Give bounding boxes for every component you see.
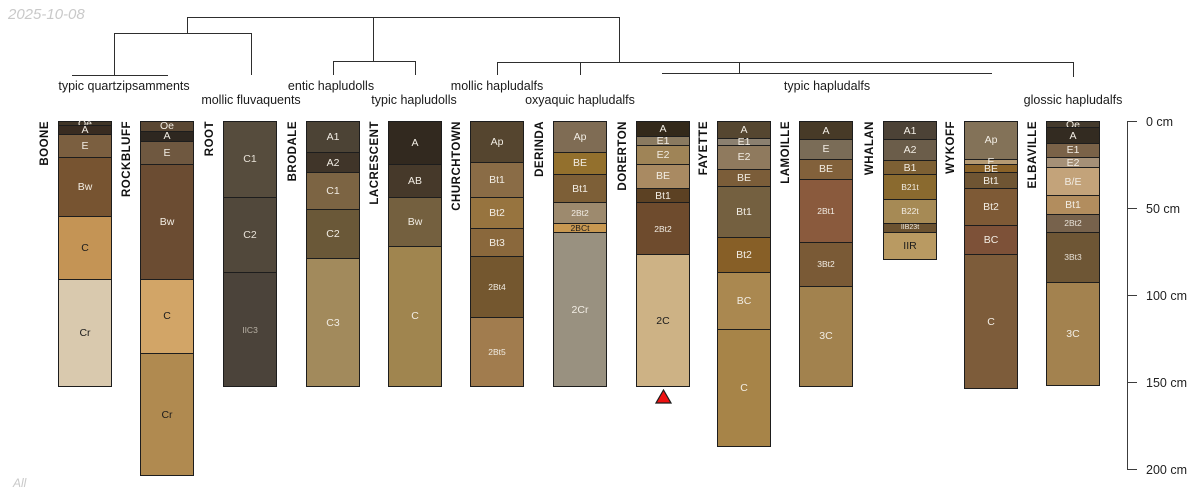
horizon: 2C	[637, 254, 689, 386]
horizon: E	[59, 134, 111, 157]
horizon: AB	[389, 164, 441, 197]
dendrogram-segment	[114, 33, 251, 34]
dendrogram-segment	[187, 17, 619, 18]
depth-tick	[1127, 208, 1137, 209]
horizon: C	[965, 254, 1017, 388]
profile-column-lacrescent: AABBwC	[388, 121, 442, 387]
profile-label: LACRESCENT	[369, 121, 381, 205]
profile-label: WYKOFF	[945, 121, 957, 174]
horizon: C3	[307, 258, 359, 387]
horizon: 2Cr	[554, 232, 606, 387]
horizon: BE	[718, 169, 770, 186]
horizon: A2	[884, 139, 936, 160]
horizon: 2Bt1	[800, 179, 852, 242]
depth-tick	[1127, 295, 1137, 296]
dendrogram-segment	[114, 33, 115, 75]
horizon: BC	[718, 272, 770, 329]
footer-note: All	[13, 476, 26, 490]
depth-tick-label: 150 cm	[1146, 376, 1187, 390]
horizon: 3Bt2	[800, 242, 852, 286]
horizon: A1	[884, 122, 936, 139]
horizon: A	[59, 125, 111, 134]
dendrogram-segment	[1073, 62, 1074, 77]
horizon: E2	[718, 145, 770, 169]
horizon: IIB23t	[884, 223, 936, 232]
horizon: Bw	[59, 157, 111, 216]
dendrogram-segment	[497, 62, 498, 75]
horizon: E2	[637, 145, 689, 164]
depth-tick-label: 0 cm	[1146, 115, 1173, 129]
taxon-label: oxyaquic hapludalfs	[525, 93, 635, 107]
horizon: B/E	[1047, 167, 1099, 195]
profile-column-dorerton: AE1E2BEBt12Bt22C	[636, 121, 690, 387]
horizon: 3C	[1047, 282, 1099, 385]
profile-label: LAMOILLE	[780, 121, 792, 184]
dendrogram-segment	[333, 61, 334, 75]
horizon: Bt1	[965, 172, 1017, 188]
horizon: C1	[224, 122, 276, 197]
horizon: IIC3	[224, 272, 276, 387]
horizon: C	[718, 329, 770, 446]
horizon: A	[637, 122, 689, 136]
horizon: B21t	[884, 174, 936, 198]
dendrogram-segment	[739, 62, 740, 73]
profile-label: WHALAN	[864, 121, 876, 175]
horizon: E2	[1047, 157, 1099, 167]
horizon: C	[389, 246, 441, 387]
dendrogram-segment	[251, 33, 252, 75]
horizon: A	[141, 131, 193, 141]
profile-column-boone: OeAEBwCCr	[58, 121, 112, 387]
horizon: E	[800, 139, 852, 158]
horizon: BE	[965, 164, 1017, 173]
horizon: BE	[637, 164, 689, 188]
horizon: A	[1047, 127, 1099, 143]
horizon: E	[141, 141, 193, 164]
horizon: A	[800, 122, 852, 139]
dendrogram-segment	[497, 62, 1073, 63]
horizon: Bt2	[718, 237, 770, 272]
profile-column-root: C1C2IIC3	[223, 121, 277, 387]
taxon-label: glossic hapludalfs	[1024, 93, 1123, 107]
horizon: Bt2	[471, 197, 523, 228]
horizon: 2Bt2	[637, 202, 689, 254]
horizon: B22t	[884, 199, 936, 223]
horizon: C2	[307, 209, 359, 258]
profile-label: DORERTON	[617, 121, 629, 191]
horizon: Bt1	[554, 174, 606, 202]
depth-tick	[1127, 469, 1137, 470]
profile-column-churchtown: ApBt1Bt2Bt32Bt42Bt5	[470, 121, 524, 387]
dendrogram-segment	[72, 75, 168, 76]
taxon-label: typic hapludalfs	[784, 79, 870, 93]
horizon: C2	[224, 197, 276, 272]
dendrogram-segment	[662, 73, 992, 74]
depth-tick	[1127, 382, 1137, 383]
horizon: E1	[1047, 143, 1099, 157]
horizon: Bt1	[1047, 195, 1099, 214]
red-triangle-marker	[655, 389, 672, 404]
horizon: A2	[307, 152, 359, 173]
taxon-label: typic hapludolls	[371, 93, 456, 107]
horizon: BE	[800, 159, 852, 180]
profile-column-lamoille: AEBE2Bt13Bt23C	[799, 121, 853, 387]
horizon: Cr	[59, 279, 111, 387]
horizon: A1	[307, 122, 359, 152]
date-watermark: 2025-10-08	[8, 6, 85, 23]
taxon-label: mollic fluvaquents	[201, 93, 300, 107]
taxon-label: mollic hapludalfs	[451, 79, 543, 93]
dendrogram-segment	[373, 17, 374, 61]
horizon: Bt3	[471, 228, 523, 256]
profile-column-elbaville: OeAE1E2B/EBt12Bt23Bt33C	[1046, 121, 1100, 386]
horizon: 2BCt	[554, 223, 606, 232]
taxon-label: entic hapludolls	[288, 79, 374, 93]
horizon: IIR	[884, 232, 936, 260]
horizon: B1	[884, 160, 936, 174]
horizon: Cr	[141, 353, 193, 475]
horizon: C	[141, 279, 193, 354]
horizon: Bt1	[471, 162, 523, 197]
depth-tick-label: 200 cm	[1146, 463, 1187, 477]
profile-column-wykoff: ApEBEBt1Bt2BCC	[964, 121, 1018, 389]
horizon: Bt1	[637, 188, 689, 202]
horizon: 3C	[800, 286, 852, 387]
dendrogram-segment	[415, 61, 416, 75]
profile-label: ROCKBLUFF	[121, 121, 133, 197]
profile-label: CHURCHTOWN	[451, 121, 463, 211]
horizon: Bt2	[965, 188, 1017, 225]
horizon: 2Bt5	[471, 317, 523, 387]
profile-column-brodale: A1A2C1C2C3	[306, 121, 360, 387]
horizon: E1	[718, 138, 770, 145]
horizon: E1	[637, 136, 689, 145]
profile-column-derinda: ApBEBt12Bt22BCt2Cr	[553, 121, 607, 387]
taxon-label: typic quartzipsamments	[58, 79, 189, 93]
profile-label: BRODALE	[287, 121, 299, 181]
soil-profile-dendrogram-plot: 2025-10-08 typic quartzipsammentsmollic …	[0, 0, 1200, 500]
horizon: Ap	[554, 122, 606, 152]
horizon: C	[59, 216, 111, 279]
profile-label: BOONE	[39, 121, 51, 166]
profile-label: FAYETTE	[698, 121, 710, 175]
profile-column-fayette: AE1E2BEBt1Bt2BCC	[717, 121, 771, 447]
dendrogram-segment	[333, 61, 415, 62]
profile-column-rockbluff: OeAEBwCCr	[140, 121, 194, 476]
dendrogram-segment	[619, 17, 620, 62]
horizon: 2Bt2	[1047, 214, 1099, 231]
horizon: BE	[554, 152, 606, 175]
dendrogram-segment	[187, 17, 188, 33]
horizon: BC	[965, 225, 1017, 255]
horizon: 2Bt4	[471, 256, 523, 317]
horizon: Bw	[141, 164, 193, 279]
horizon: Bt1	[718, 186, 770, 236]
horizon: Ap	[471, 122, 523, 162]
horizon: A	[389, 122, 441, 164]
profile-label: DERINDA	[534, 121, 546, 177]
dendrogram-segment	[580, 62, 581, 75]
horizon: 3Bt3	[1047, 232, 1099, 282]
profile-label: ROOT	[204, 121, 216, 156]
depth-tick-label: 50 cm	[1146, 202, 1180, 216]
depth-tick	[1127, 121, 1137, 122]
profile-column-whalan: A1A2B1B21tB22tIIB23tIIR	[883, 121, 937, 260]
horizon: C1	[307, 172, 359, 209]
horizon: Bw	[389, 197, 441, 246]
horizon: Oe	[141, 122, 193, 131]
horizon: 2Bt2	[554, 202, 606, 223]
depth-tick-label: 100 cm	[1146, 289, 1187, 303]
horizon: Ap	[965, 122, 1017, 159]
profile-label: ELBAVILLE	[1027, 121, 1039, 189]
